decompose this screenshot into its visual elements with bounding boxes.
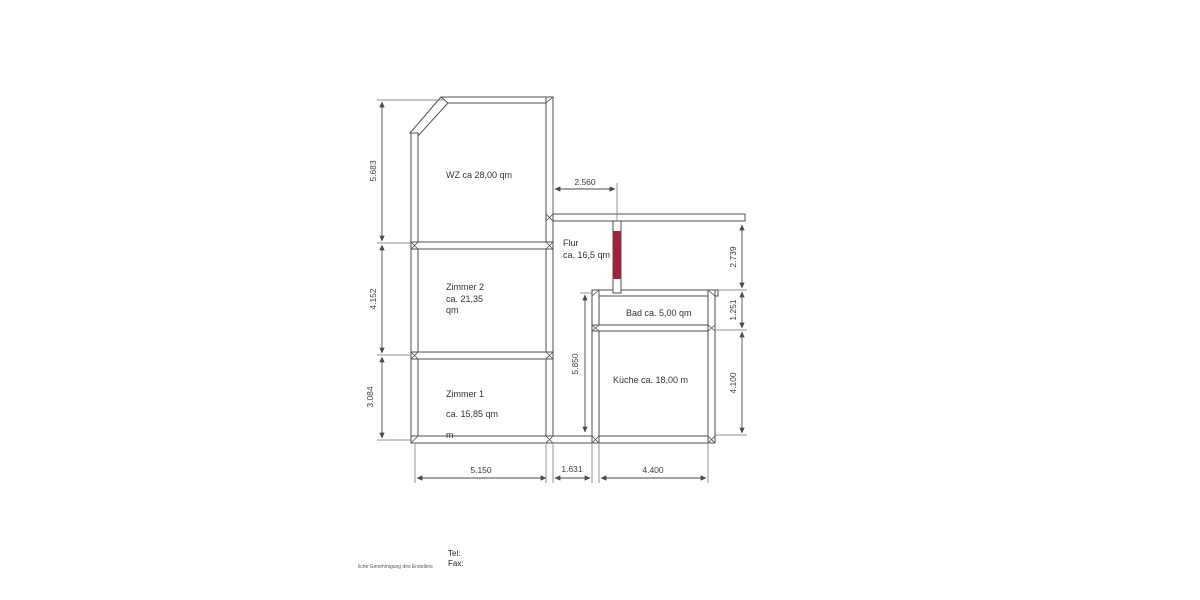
wall-wz-top bbox=[441, 97, 553, 103]
floorplan-drawing: 5.683 4.152 3.084 2.560 2.739 1.251 4.10… bbox=[0, 0, 1200, 600]
wall-kueche-left bbox=[592, 290, 599, 443]
wall-bad-top bbox=[592, 290, 718, 296]
door-marker-red bbox=[614, 231, 621, 279]
room-label-zimmer2-line1: Zimmer 2 bbox=[446, 282, 484, 292]
room-labels: WZ ca 28,00 qm Zimmer 2 ca. 21,35 qm Zim… bbox=[446, 170, 692, 440]
footer-copyright-note: liche Genehmigung des Erstellers bbox=[358, 564, 433, 570]
wall-left-outer bbox=[411, 133, 418, 443]
wall-wz-chamfer bbox=[410, 97, 448, 137]
dim-left-middle: 4.152 bbox=[368, 288, 378, 310]
wall-flur-left bbox=[546, 97, 553, 443]
dim-bottom-left: 5.150 bbox=[470, 465, 492, 475]
dim-top: 2.560 bbox=[574, 177, 596, 187]
footer-fax-label: Fax: bbox=[448, 559, 464, 568]
dim-left-top: 5.683 bbox=[368, 160, 378, 182]
wall-right-outer bbox=[708, 290, 715, 443]
wall-zimmer2-zimmer1 bbox=[411, 352, 553, 359]
room-label-zimmer1-line2: ca. 15,85 qm bbox=[446, 409, 498, 419]
dim-right-middle: 1.251 bbox=[728, 299, 738, 321]
room-label-wz: WZ ca 28,00 qm bbox=[446, 170, 512, 180]
wall-bad-kueche bbox=[592, 325, 715, 331]
dim-right-bottom: 4.100 bbox=[728, 372, 738, 394]
dim-left-bottom: 3.084 bbox=[365, 386, 375, 408]
floorplan-page: 5.683 4.152 3.084 2.560 2.739 1.251 4.10… bbox=[0, 0, 1200, 600]
room-label-zimmer1-line1: Zimmer 1 bbox=[446, 389, 484, 399]
wall-wz-zimmer2 bbox=[411, 242, 553, 249]
room-label-kueche: Küche ca. 18,00 m bbox=[613, 375, 688, 385]
footer: Tel: Fax: liche Genehmigung des Erstelle… bbox=[358, 549, 464, 570]
dim-right-top: 2.739 bbox=[728, 246, 738, 268]
wall-flur-top bbox=[553, 214, 745, 221]
room-label-zimmer1-line3: m bbox=[446, 430, 454, 440]
dim-flur-height: 5.850 bbox=[570, 353, 580, 375]
footer-tel-label: Tel: bbox=[448, 549, 460, 558]
dim-bottom-middle: 1.631 bbox=[561, 464, 583, 474]
room-label-zimmer2-line2: ca. 21,35 bbox=[446, 294, 483, 304]
room-label-flur-line2: ca. 16,5 qm bbox=[563, 250, 610, 260]
wall-bottom-outer bbox=[411, 436, 715, 443]
room-label-flur-line1: Flur bbox=[563, 238, 579, 248]
room-label-zimmer2-line3: qm bbox=[446, 305, 459, 315]
room-label-bad: Bad ca. 5,00 qm bbox=[626, 308, 692, 318]
dim-bottom-right: 4.400 bbox=[642, 465, 664, 475]
